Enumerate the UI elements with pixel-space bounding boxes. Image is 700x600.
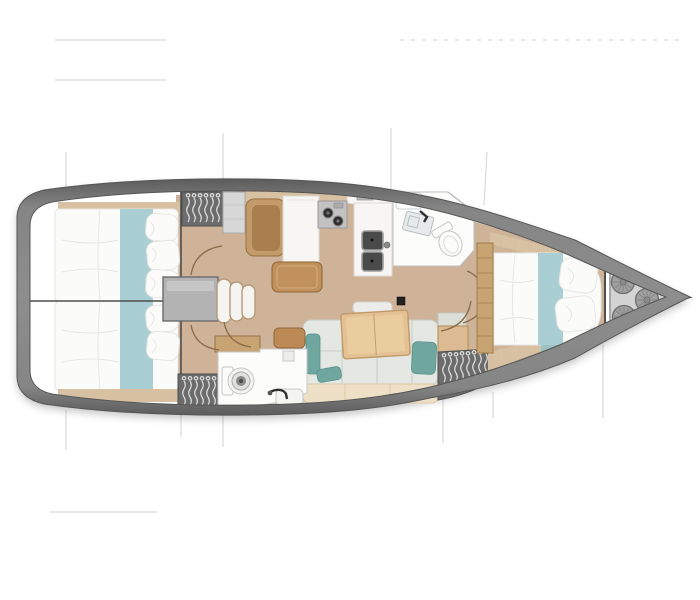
vanity-top xyxy=(215,336,260,352)
wardrobe-aft-top xyxy=(182,192,223,226)
soap-box xyxy=(283,351,294,361)
dresser xyxy=(477,243,493,353)
floorplan-canvas xyxy=(0,0,700,600)
sink-unit xyxy=(354,203,392,276)
bed-runner xyxy=(538,253,563,345)
aft-cabin-port xyxy=(55,202,180,302)
hatch-tray xyxy=(274,328,305,348)
companionway xyxy=(163,277,255,323)
mast-post-icon xyxy=(397,297,405,305)
aft-cabin-starboard xyxy=(55,301,180,402)
stove-icon xyxy=(318,201,347,228)
companionway-steps xyxy=(217,279,255,323)
yacht-floorplan xyxy=(0,0,700,600)
cabinet-aft-top xyxy=(223,192,245,233)
interior xyxy=(22,187,693,414)
salon-table xyxy=(341,310,411,359)
chart-table xyxy=(283,196,319,262)
toilet-icon xyxy=(222,367,254,395)
